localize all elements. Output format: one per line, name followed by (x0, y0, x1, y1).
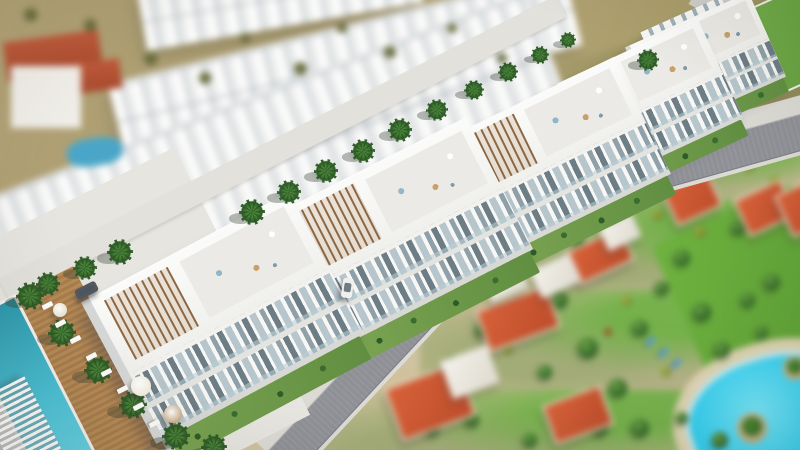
palm-tree (498, 62, 518, 82)
palm-tree (16, 282, 43, 309)
palm-fronds (277, 180, 302, 205)
palm-fronds (498, 62, 518, 82)
parasol (164, 405, 182, 423)
props-layer (0, 0, 800, 450)
palm-tree (277, 180, 302, 205)
palm-tree (201, 434, 227, 450)
palm-tree (239, 199, 265, 225)
palm-tree (637, 49, 659, 71)
palm-tree (351, 139, 374, 162)
palm-fronds (464, 80, 485, 101)
palm-fronds (16, 282, 43, 309)
palm-tree (560, 32, 577, 49)
aerial-development-render (0, 0, 800, 450)
parked-car (340, 277, 354, 298)
palm-fronds (239, 199, 265, 225)
palm-fronds (162, 422, 191, 450)
palm-fronds (388, 118, 411, 141)
parasol (53, 303, 67, 317)
parked-car (73, 280, 98, 300)
palm-fronds (201, 434, 227, 450)
palm-fronds (73, 256, 98, 281)
palm-tree (107, 239, 133, 265)
car-windshield (78, 284, 95, 296)
palm-fronds (107, 239, 133, 265)
car-windshield (343, 283, 352, 293)
palm-fronds (314, 159, 339, 184)
palm-fronds (351, 139, 374, 162)
palm-tree (464, 80, 485, 101)
sun-lounger (148, 419, 160, 428)
palm-tree (162, 422, 191, 450)
palm-tree (314, 159, 339, 184)
palm-fronds (531, 46, 549, 64)
parasol (131, 376, 151, 396)
palm-tree (531, 46, 549, 64)
palm-fronds (637, 49, 659, 71)
palm-tree (73, 256, 98, 281)
palm-tree (388, 118, 411, 141)
palm-fronds (426, 99, 448, 121)
palm-tree (426, 99, 448, 121)
palm-fronds (560, 32, 577, 49)
